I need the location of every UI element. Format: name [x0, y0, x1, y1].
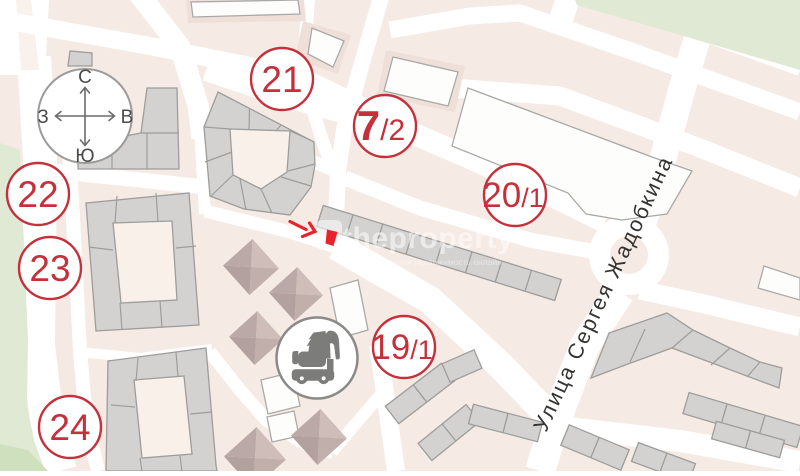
- svg-text:21: 21: [261, 59, 302, 100]
- svg-text:Ю: Ю: [75, 146, 94, 167]
- svg-text:22: 22: [17, 174, 58, 215]
- svg-text:theproperty: theproperty: [342, 222, 514, 255]
- svg-text:В: В: [121, 107, 134, 128]
- svg-text:З: З: [37, 107, 48, 128]
- svg-text:С: С: [78, 67, 92, 88]
- svg-text:23: 23: [29, 248, 70, 289]
- svg-text:ипотечная недвижимость онлайн: ипотечная недвижимость онлайн: [371, 257, 502, 267]
- svg-text:24: 24: [49, 407, 90, 448]
